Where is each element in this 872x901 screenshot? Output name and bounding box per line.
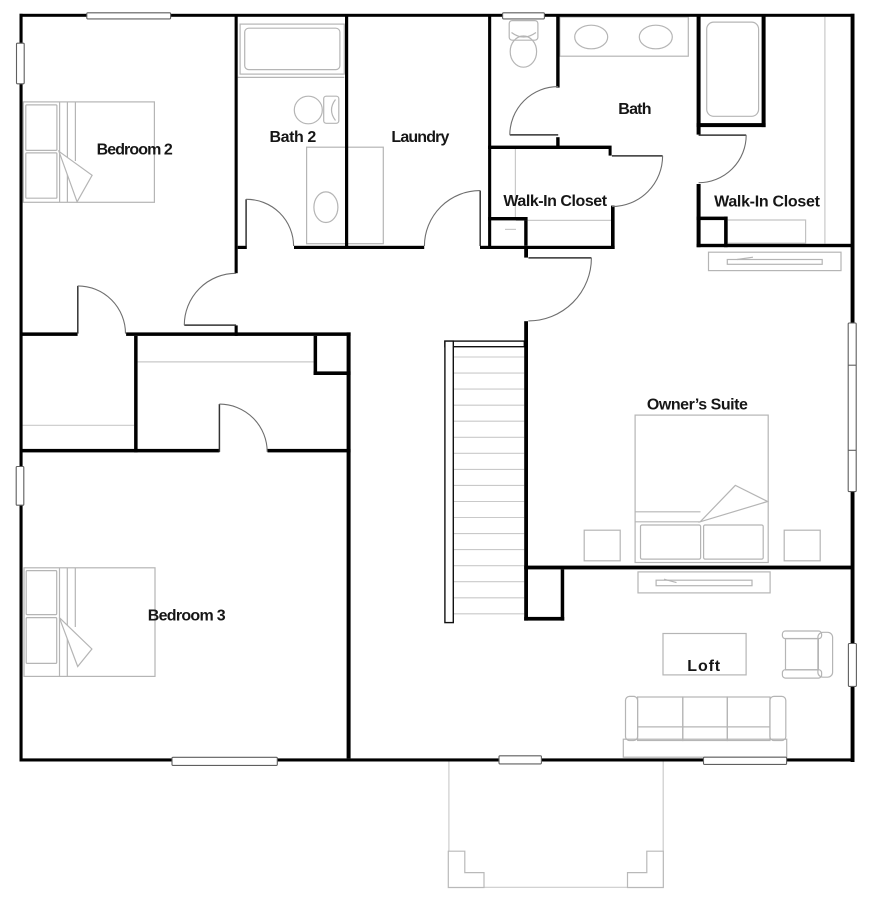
svg-text:Bedroom 3: Bedroom 3 xyxy=(148,607,226,624)
svg-text:Owner’s Suite: Owner’s Suite xyxy=(647,396,748,413)
svg-text:Bath: Bath xyxy=(618,101,651,118)
svg-text:Walk-In Closet: Walk-In Closet xyxy=(714,193,820,210)
svg-text:Walk-In Closet: Walk-In Closet xyxy=(503,193,607,210)
svg-text:Laundry: Laundry xyxy=(391,129,449,146)
svg-text:Loft: Loft xyxy=(687,658,720,675)
svg-text:Bath 2: Bath 2 xyxy=(270,129,317,146)
svg-text:Bedroom 2: Bedroom 2 xyxy=(97,141,173,158)
